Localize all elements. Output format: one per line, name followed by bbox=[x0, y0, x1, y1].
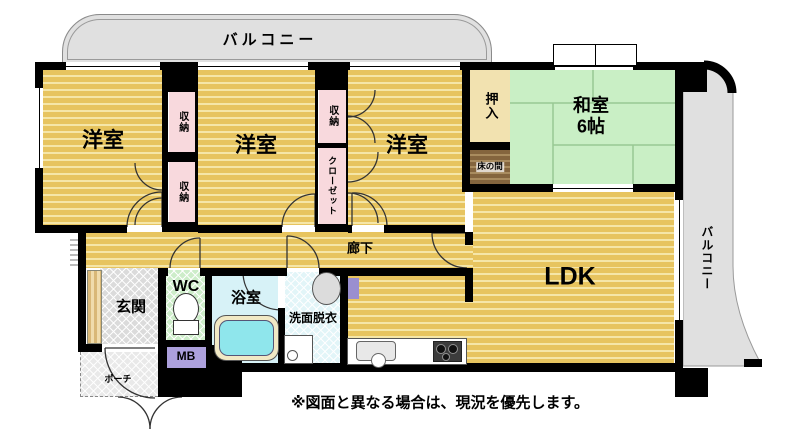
ldk-label: LDK bbox=[544, 263, 595, 292]
wall bbox=[78, 344, 102, 352]
wall bbox=[384, 225, 465, 233]
sink-basin-icon bbox=[312, 272, 341, 305]
wall bbox=[200, 268, 287, 276]
japanese-room-label: 和室 6帖 bbox=[573, 95, 609, 136]
balcony-right-shape bbox=[683, 64, 760, 366]
entrance-label: 玄関 bbox=[116, 298, 146, 315]
washer-pan-icon bbox=[284, 335, 313, 364]
storage-3-label: 収納 bbox=[326, 105, 338, 127]
pipe-space bbox=[348, 278, 359, 299]
japanese-room-size: 6帖 bbox=[577, 116, 605, 136]
japanese-room-name: 和室 bbox=[573, 95, 609, 115]
wc-label: WC bbox=[173, 278, 200, 296]
bathroom-label: 浴室 bbox=[231, 289, 261, 306]
wall bbox=[78, 232, 86, 352]
wall-hatch bbox=[70, 236, 78, 266]
toilet-tank-icon bbox=[173, 320, 199, 335]
oshiire-label: 押入 bbox=[483, 92, 498, 120]
bathtub-icon bbox=[214, 315, 279, 361]
tokonoma-label: 床の間 bbox=[476, 162, 504, 172]
stove-icon bbox=[433, 341, 462, 362]
hallway-floor bbox=[86, 232, 473, 268]
wall bbox=[158, 268, 166, 368]
window bbox=[198, 62, 308, 70]
disclaimer-note: ※図面と異なる場合は、現況を優先します。 bbox=[291, 392, 589, 413]
balcony-right-label: バルコニー bbox=[699, 226, 713, 291]
porch-label: ポーチ bbox=[104, 374, 131, 384]
shoe-cabinet bbox=[87, 270, 102, 344]
kitchen-faucet-icon bbox=[371, 353, 386, 368]
storage-1-label: 収納 bbox=[176, 111, 188, 133]
meter-box-label: MB bbox=[177, 350, 196, 364]
washroom-label: 洗面脱衣 bbox=[289, 312, 337, 326]
western-room-2-label: 洋室 bbox=[235, 134, 277, 158]
corner-wall-arc bbox=[704, 65, 732, 93]
western-room-3-label: 洋室 bbox=[386, 134, 428, 158]
wall bbox=[462, 142, 510, 150]
window-bay bbox=[553, 44, 637, 66]
wall bbox=[462, 62, 470, 192]
wall bbox=[158, 368, 242, 397]
storage-2-label: 収納 bbox=[176, 181, 188, 203]
wall bbox=[465, 232, 473, 245]
window bbox=[675, 200, 683, 320]
closet-label: クローゼット bbox=[327, 156, 337, 216]
wall bbox=[675, 368, 708, 397]
ldk-floor-upper bbox=[473, 192, 674, 272]
hallway-label: 廊下 bbox=[347, 242, 373, 257]
wall bbox=[198, 225, 282, 233]
window bbox=[350, 62, 460, 70]
window bbox=[66, 62, 160, 70]
wall bbox=[278, 268, 285, 274]
wall bbox=[348, 225, 352, 233]
wall bbox=[677, 62, 707, 92]
western-room-1-label: 洋室 bbox=[82, 129, 124, 153]
balcony-top-label: バルコニー bbox=[223, 31, 318, 48]
window bbox=[35, 88, 43, 168]
wall bbox=[744, 359, 762, 367]
floor-plan: バルコニー バルコニー 洋室 洋室 洋室 収納 収納 収納 クローゼット 押入 … bbox=[0, 0, 800, 443]
sliding-door-opening bbox=[553, 184, 633, 192]
